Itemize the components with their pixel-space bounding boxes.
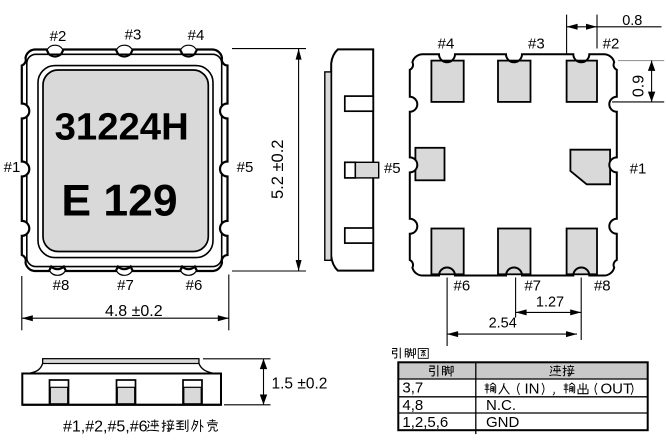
svg-text:#1: #1 [4,159,21,176]
svg-text:#1: #1 [630,161,647,178]
svg-text:OUT: OUT [601,381,633,398]
svg-text:#1,#2,#5,#6: #1,#2,#5,#6 [63,419,148,436]
svg-text:5.2 ±0.2: 5.2 ±0.2 [269,140,287,200]
svg-text:2.54: 2.54 [489,316,517,332]
svg-text:#5: #5 [384,160,401,177]
svg-text:N.C.: N.C. [486,397,516,414]
svg-text:GND: GND [486,414,520,431]
svg-text:#6: #6 [186,277,203,294]
svg-text:31224H: 31224H [55,106,189,149]
svg-text:0.9: 0.9 [630,75,647,97]
svg-text:1,2,5,6: 1,2,5,6 [402,414,448,431]
svg-text:#2: #2 [50,28,67,45]
svg-text:#8: #8 [53,277,70,294]
svg-text:#3: #3 [528,36,545,53]
svg-text:#6: #6 [454,278,471,295]
svg-text:#8: #8 [594,278,611,295]
svg-text:#5: #5 [237,159,254,176]
svg-text:#3: #3 [125,27,142,44]
svg-text:#7: #7 [524,278,541,295]
svg-text:4,8: 4,8 [402,397,423,414]
svg-text:IN: IN [525,381,540,398]
svg-text:1.27: 1.27 [536,295,564,311]
svg-text:E 129: E 129 [61,176,177,225]
svg-text:4.8 ±0.2: 4.8 ±0.2 [105,303,163,320]
svg-text:0.8: 0.8 [622,13,642,29]
svg-text:1.5 ±0.2: 1.5 ±0.2 [272,376,328,393]
svg-text:#4: #4 [438,36,455,53]
svg-text:#7: #7 [117,277,134,294]
svg-text:#2: #2 [603,36,620,53]
svg-text:3,7: 3,7 [402,380,423,397]
svg-text:#4: #4 [188,27,205,44]
